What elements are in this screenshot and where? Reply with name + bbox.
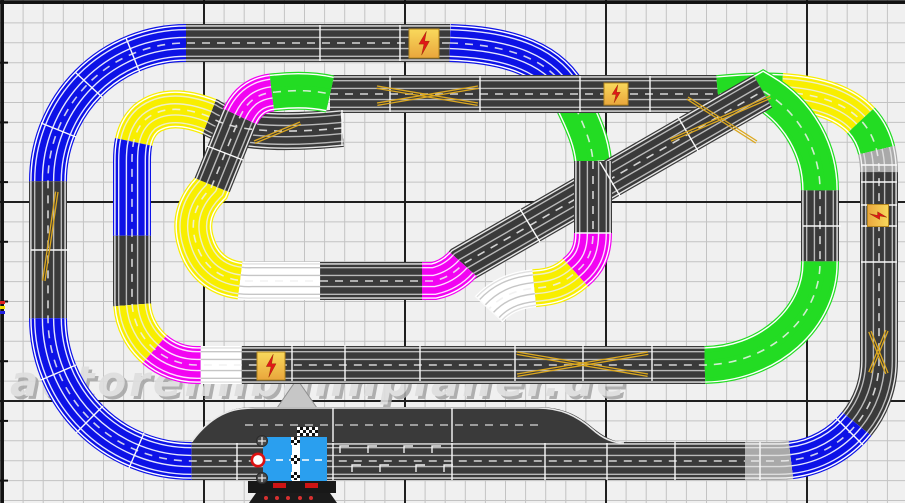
lightning-icon[interactable]: [868, 205, 889, 227]
control-unit[interactable]: [248, 427, 337, 503]
track-plan: autorennbahnplaner.deautorennbahnplaner.…: [0, 0, 905, 503]
lightning-icon[interactable]: [604, 83, 628, 105]
ruler-tick: [0, 306, 5, 309]
ruler-tick: [0, 311, 5, 314]
lightning-icon[interactable]: [409, 29, 439, 58]
start-button[interactable]: [252, 454, 264, 466]
track-designer-canvas: autorennbahnplaner.deautorennbahnplaner.…: [0, 0, 905, 503]
pit-lane-widening[interactable]: [192, 407, 625, 443]
lightning-icon[interactable]: [257, 352, 285, 380]
ruler-tick: [0, 301, 5, 304]
